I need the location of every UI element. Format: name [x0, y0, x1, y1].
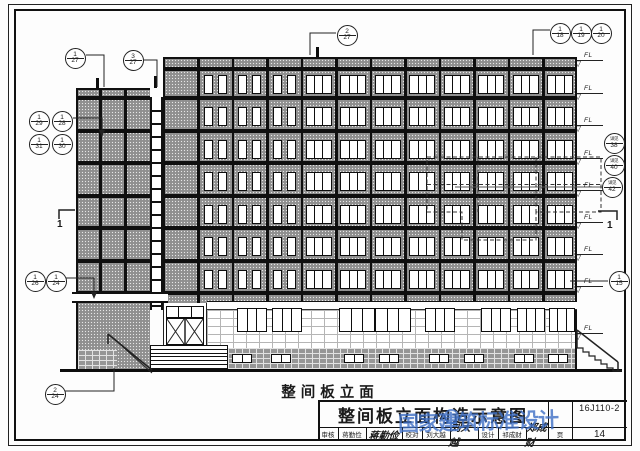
review-label: 审核 — [318, 427, 338, 441]
title-block: 整间板立面构造示意图 16J110-2 页 14 审核 蒋勤俭 蒋勤俭 校对 刘… — [0, 0, 640, 451]
review-name: 蒋勤俭 — [338, 427, 366, 441]
watermark-text: 国家建筑标准设计 — [398, 402, 639, 438]
drawing-sheet: 1273272271181191201291281311301261242241… — [0, 0, 640, 451]
